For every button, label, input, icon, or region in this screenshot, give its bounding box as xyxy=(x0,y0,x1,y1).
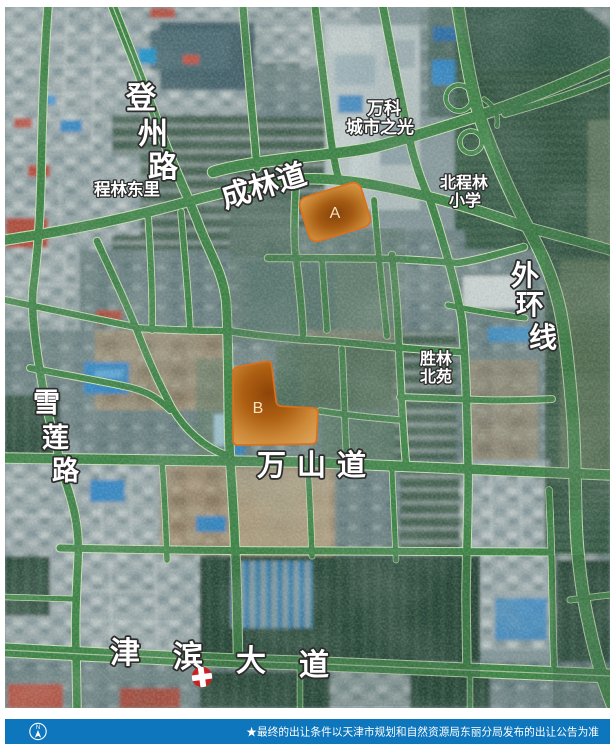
svg-text:路: 路 xyxy=(52,455,80,486)
svg-text:万山道: 万山道 xyxy=(257,449,377,482)
svg-text:程林东里: 程林东里 xyxy=(94,179,160,199)
svg-text:北苑: 北苑 xyxy=(420,367,452,386)
svg-text:北程林: 北程林 xyxy=(440,173,488,192)
svg-text:登: 登 xyxy=(125,82,157,115)
svg-text:环: 环 xyxy=(516,289,544,320)
svg-text:雪: 雪 xyxy=(33,388,60,418)
svg-text:大: 大 xyxy=(236,645,266,678)
svg-text:道: 道 xyxy=(299,649,329,682)
svg-text:州: 州 xyxy=(138,118,168,151)
svg-text:小学: 小学 xyxy=(449,191,481,210)
svg-text:线: 线 xyxy=(529,322,557,353)
svg-text:万科: 万科 xyxy=(366,98,401,118)
svg-text:路: 路 xyxy=(148,151,179,184)
svg-text:城市之光: 城市之光 xyxy=(346,117,414,137)
svg-text:A: A xyxy=(330,205,341,222)
svg-text:莲: 莲 xyxy=(42,423,69,453)
svg-text:津: 津 xyxy=(110,637,140,670)
svg-text:B: B xyxy=(253,400,264,417)
svg-text:★最终的出让条件以天津市规划和自然资源局东丽分局发布的出让公: ★最终的出让条件以天津市规划和自然资源局东丽分局发布的出让公告为准 xyxy=(246,726,599,739)
svg-text:胜林: 胜林 xyxy=(420,349,452,368)
svg-text:外: 外 xyxy=(511,260,539,291)
